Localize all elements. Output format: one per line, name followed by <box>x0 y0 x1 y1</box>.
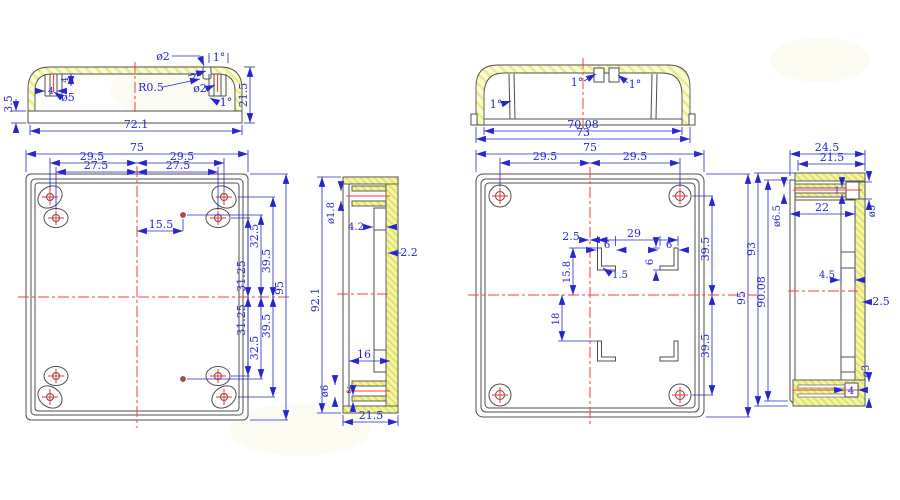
dim-label-boss-hole: ø6.5 <box>772 205 783 227</box>
dim-label-tab: 4.2 <box>348 222 364 233</box>
pin-hole-top <box>181 213 186 218</box>
dim-label-inner-height: 90.08 <box>755 276 768 308</box>
dim-label-draft2: 1° <box>220 96 233 109</box>
dim-label-width: 72.1 <box>124 118 149 131</box>
dim-label-t2: 31.25 <box>235 260 248 292</box>
dim-label-boss-l: 27.5 <box>84 159 109 172</box>
dim-label-clip-span: 29 <box>627 227 641 240</box>
dim-label-radius: R0.5 <box>138 81 164 94</box>
dim-label-width: 75 <box>583 141 597 154</box>
dim-label-hole-r: 29.5 <box>623 150 648 163</box>
dim-label-t1: 39.5 <box>699 237 712 262</box>
dim-label-draft-wall: 1° <box>490 98 503 111</box>
dim-label-top-hole: ø2 <box>156 50 170 63</box>
dim-label-flange-h: 3.5 <box>2 95 15 113</box>
dim-label-height: 93 <box>745 242 758 256</box>
dim-label-inner-depth: 21.5 <box>820 151 845 164</box>
dim-label-side-hole: ø2 <box>193 82 207 95</box>
rail-top <box>841 252 855 268</box>
dim-label-b3: 39.5 <box>260 314 273 339</box>
dim-label-wall: 2.2 <box>400 246 418 259</box>
dim-label-clip-h: 6 <box>645 259 656 265</box>
dim-label-depth: 21.5 <box>359 409 384 422</box>
dim-label-height: 92.1 <box>309 288 322 313</box>
dim-label-clip-y-top: 15.8 <box>562 261 573 283</box>
dim-label-b2: 32.5 <box>248 336 261 361</box>
dim-label-rail: 4.5 <box>819 270 835 281</box>
view-base-plan: 75 29.5 29.5 2.5 6 29 6 6 15.8 1.5 <box>468 141 757 424</box>
dim-label-b1: 31.25 <box>235 304 248 336</box>
dim-label-clip-off: 2.5 <box>562 230 580 243</box>
dim-label-hole-w: 4 <box>48 87 54 97</box>
view-lid-plan: 75 29.5 29.5 27.5 27.5 15.5 31.25 32.5 3… <box>18 141 290 428</box>
dim-label-clip-w-l: 6 <box>604 240 610 251</box>
dim-label-outer-w: 73 <box>576 126 590 139</box>
dim-label-pin-offset: 15.5 <box>149 218 174 231</box>
clip-slot-right <box>609 68 619 82</box>
notch-top <box>374 208 386 230</box>
dim-label-clip-t: 1.5 <box>612 270 628 281</box>
rail-bottom <box>841 357 855 372</box>
dim-label-height: 95 <box>273 281 286 295</box>
dim-label-rib: 2 <box>346 386 351 395</box>
dim-label-boss-w: 4 <box>848 386 854 397</box>
dim-label-slot: 16 <box>357 348 371 361</box>
dim-label-t3: 39.5 <box>260 249 273 274</box>
clip-slot-left <box>594 68 604 82</box>
view-base-section: 1° 1° 1° 70.08 73 <box>471 58 695 143</box>
dim-label-clip-y-bot: 18 <box>551 313 562 326</box>
dim-label-boss-r: 27.5 <box>166 159 191 172</box>
dim-label-boss-dia: ø5 <box>867 205 878 217</box>
technical-drawing-canvas: 3.5 72.1 21.5 ø5 4 4 ø2 R0.5 2° ø2 1° 1° <box>0 0 900 500</box>
dim-label-draft-clip-r: 1° <box>629 78 642 91</box>
dim-label-hole-l: 29.5 <box>533 150 558 163</box>
view-lid-side: 92.1 ø1.8 4.2 2.2 16 ø6 2 21.5 <box>309 177 418 426</box>
dim-label-rib-t: 1 <box>834 186 839 195</box>
dim-label-b1: 39.5 <box>699 334 712 359</box>
dim-label-t1: 32.5 <box>248 224 261 249</box>
technical-drawing-page: 3.5 72.1 21.5 ø5 4 4 ø2 R0.5 2° ø2 1° 1° <box>0 0 900 500</box>
dim-label-hole-bot: ø3 <box>861 365 872 377</box>
dim-label-boss-dia: ø5 <box>61 91 75 104</box>
view-base-side: 24.5 21.5 ø6.5 22 ø5 1 4.5 2.5 ø3 4 93 <box>745 141 890 406</box>
dim-label-boss-dia: ø6 <box>320 385 331 397</box>
dim-label-width: 75 <box>130 141 144 154</box>
dim-label-boss-depth: 4 <box>61 77 71 83</box>
dim-label-pin-dia: ø1.8 <box>326 202 337 224</box>
dim-label-wall: 2.5 <box>872 295 890 308</box>
dim-label-height: 95 <box>735 291 748 305</box>
dim-label-height: 21.5 <box>237 83 250 108</box>
dim-label-boss-len: 22 <box>815 201 829 214</box>
dim-label-draft1: 1° <box>213 51 226 64</box>
dim-label-clip-w-r: 6 <box>666 240 672 251</box>
dim-label-draft-clip-l: 1° <box>571 76 584 89</box>
pin-hole-bottom <box>181 377 186 382</box>
